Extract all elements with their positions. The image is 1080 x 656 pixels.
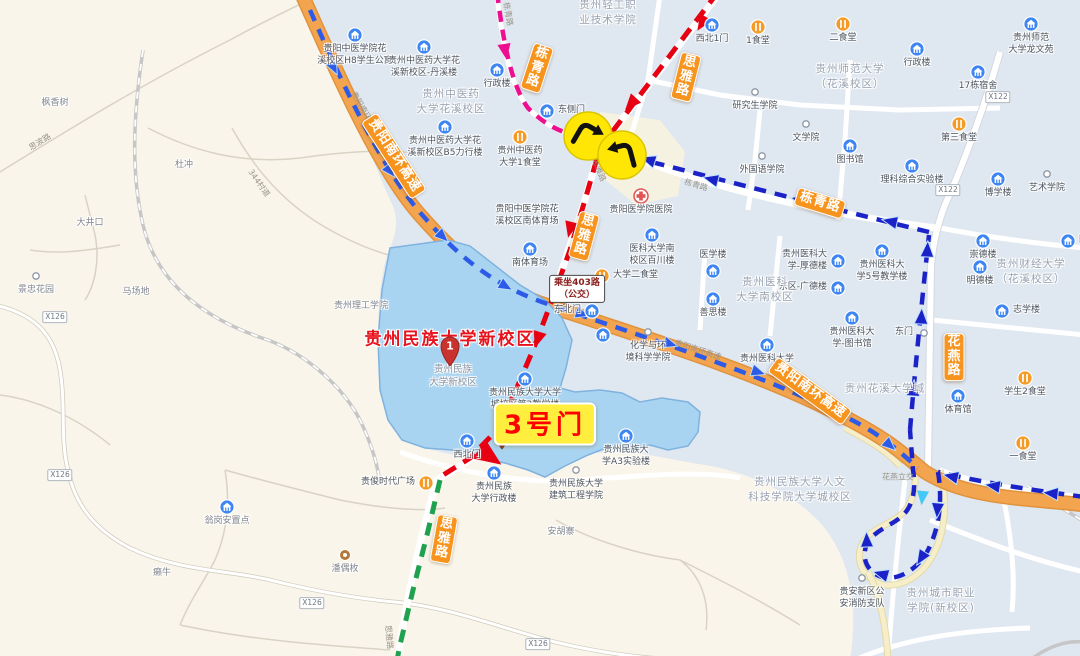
poi-wenxueyuan-icon bbox=[797, 115, 815, 133]
poi-yike-university-icon bbox=[758, 336, 776, 354]
poi-shida-admin-icon bbox=[908, 40, 926, 58]
road-siyalu-small-s: 思雅路 bbox=[382, 625, 395, 650]
poi-foreign-languages-icon bbox=[753, 147, 771, 165]
poi-panoumei-icon bbox=[336, 546, 354, 564]
poi-fire-brigade-label: 贵安新区公安消防支队 bbox=[839, 587, 884, 610]
poi-mingdelou-icon bbox=[971, 258, 989, 276]
turn-left-icon bbox=[596, 129, 648, 185]
route-green-siya bbox=[397, 480, 440, 656]
poi-houdelou-icon bbox=[829, 252, 847, 270]
poi-yixuelou-label: 医学楼 bbox=[699, 250, 726, 262]
poi-lainiu-label: 癞牛 bbox=[153, 568, 171, 580]
poi-zy-canteen1-icon bbox=[511, 128, 529, 146]
poi-boxuelou-icon bbox=[989, 170, 1007, 188]
poi-south-stadium-name-label: 贵阳中医学院花溪校区南体育场 bbox=[495, 204, 558, 227]
poi-dajingkou-label: 大井口 bbox=[76, 218, 103, 230]
poi-gymnasium-icon bbox=[949, 387, 967, 405]
poi-canteen2-icon bbox=[834, 15, 852, 33]
poi-yishitang-icon bbox=[1014, 434, 1032, 452]
shield-x126-c: X126 bbox=[299, 597, 324, 609]
poi-foreign-languages-label: 外国语学院 bbox=[739, 165, 784, 177]
poi-guijun-plaza-icon bbox=[417, 474, 435, 492]
poi-architecture-school-label: 贵州民族大学建筑工程学院 bbox=[549, 479, 603, 502]
shield-x126-d: X126 bbox=[525, 638, 550, 650]
map-canvas[interactable]: 贵阳中医学院花溪校区H8学生公寓贵州中医药大学花溪新校区-丹溪楼行政楼贵州中医药… bbox=[0, 0, 1080, 656]
shield-x126-a: X126 bbox=[42, 311, 67, 323]
poi-b5-building-icon bbox=[436, 118, 454, 136]
poi-east-gate-icon bbox=[915, 324, 933, 342]
poi-minzu-admin-label: 贵州民族大学行政楼 bbox=[471, 482, 516, 505]
poi-zy-canteen1-label: 贵州中医药大学1食堂 bbox=[497, 146, 542, 169]
shield-x122-south: X122 bbox=[935, 184, 960, 196]
poi-yixuelou-icon bbox=[704, 262, 722, 280]
poi-jingzhong-garden-label: 景忠花园 bbox=[18, 285, 54, 297]
poi-zhixuelou-icon bbox=[993, 302, 1011, 320]
poi-northwest-gate1-label: 西北1门 bbox=[696, 34, 729, 46]
poi-teaching-building2-icon bbox=[516, 370, 534, 388]
poi-zy-admin-icon bbox=[488, 61, 506, 79]
poi-univ-canteen2-label: 大学二食堂 bbox=[613, 270, 658, 282]
poi-panoumei-label: 潘偶枚 bbox=[331, 564, 358, 576]
poi-guangdelou-icon bbox=[829, 279, 847, 297]
poi-guizhou-tech-label: 贵州理工学院 bbox=[334, 301, 388, 313]
poi-gymnasium-label: 体育馆 bbox=[944, 405, 971, 417]
poi-minzu-admin-icon bbox=[485, 464, 503, 482]
poi-northeast-gate-icon bbox=[583, 302, 601, 320]
poi-jingzhong-garden-icon bbox=[27, 267, 45, 285]
area-huaxi-university-town: 贵州花溪大学城 bbox=[845, 381, 926, 396]
poi-northwest-gate-icon bbox=[458, 432, 476, 450]
poi-baichuanlou-icon bbox=[643, 226, 661, 244]
poi-guiyang-hospital-icon bbox=[632, 187, 650, 205]
poi-east-gate-label: 东门 bbox=[895, 327, 913, 339]
poi-graduate-school-label: 研究生学院 bbox=[732, 101, 777, 113]
poi-art-school-label: 艺术学院 bbox=[1029, 183, 1065, 195]
poi-duchong-label: 杜冲 bbox=[175, 160, 193, 172]
poi-guijun-plaza-label: 贵俊时代广场 bbox=[361, 477, 415, 489]
shield-x126-b: X126 bbox=[47, 469, 72, 481]
poi-yike-building5-label: 贵州医科大学5号教学楼 bbox=[857, 260, 908, 283]
poi-wenggang-settlement-icon bbox=[218, 498, 236, 516]
poi-yike-library-label: 贵州医科大学-图书馆 bbox=[829, 327, 874, 350]
poi-h8-dorm-label: 贵阳中医学院花溪校区H8学生公寓 bbox=[317, 44, 393, 67]
road-huayan-interchange: 花燕立交 bbox=[882, 472, 914, 483]
poi-b5-building-label: 贵州中医药大学花溪新校区B5力行楼 bbox=[408, 136, 483, 159]
poi-a3-lab-icon bbox=[617, 427, 635, 445]
destination-sub-label: 贵州民族 大学新校区 bbox=[429, 364, 477, 390]
poi-art-school-icon bbox=[1038, 165, 1056, 183]
poi-baichuanlou-label: 医科大学南校区百川楼 bbox=[629, 244, 674, 267]
poi-longwenyuan-icon bbox=[1022, 15, 1040, 33]
poi-science-lab-label: 理科综合实验楼 bbox=[880, 175, 943, 187]
poi-yike-library-icon bbox=[843, 309, 861, 327]
poi-graduate-school-icon bbox=[746, 83, 764, 101]
poi-east-side-gate-icon bbox=[538, 102, 556, 120]
poi-zy-admin-label: 行政楼 bbox=[483, 79, 510, 91]
poi-northwest-gate-label: 西北门 bbox=[453, 450, 480, 462]
poi-south-stadium-label: 南体育场 bbox=[512, 258, 548, 270]
poi-chongdelou-icon bbox=[974, 232, 992, 250]
area-shifan-campus: 贵州师范大学（花溪校区） bbox=[816, 62, 885, 92]
area-renwen-keji-campus: 贵州民族大学人文科技学院大学城校区 bbox=[748, 475, 852, 505]
poi-shida-library-label: 图书馆 bbox=[836, 155, 863, 167]
poi-canteen1-icon bbox=[749, 18, 767, 36]
poi-canteen2-label: 二食堂 bbox=[829, 33, 856, 45]
poi-student-canteen2-label: 学生2食堂 bbox=[1004, 387, 1046, 399]
poi-boxuelou-label: 博学楼 bbox=[984, 188, 1011, 200]
poi-shida-admin-label: 行政楼 bbox=[903, 58, 930, 70]
poi-anhuzhai-label: 安胡寨 bbox=[547, 527, 574, 539]
area-qinggong-college: 贵州轻工职业技术学院 bbox=[579, 0, 637, 28]
poi-canteen3-label: 第三食堂 bbox=[941, 133, 977, 145]
poi-shida-library-icon bbox=[841, 137, 859, 155]
poi-science-lab-icon bbox=[903, 157, 921, 175]
poi-guiyang-hospital-label: 贵阳医学院医院 bbox=[609, 205, 672, 217]
area-city-vocational: 贵州城市职业学院(新校区) bbox=[907, 586, 976, 616]
poi-architecture-school-icon bbox=[567, 461, 585, 479]
poi-caijing-library-icon bbox=[1059, 232, 1077, 250]
poi-machangdi-label: 马场地 bbox=[122, 287, 149, 299]
poi-danxi-building-icon bbox=[415, 38, 433, 56]
poi-shansilou-label: 善思楼 bbox=[699, 308, 726, 320]
poi-danxi-building-label: 贵州中医药大学花溪新校区-丹溪楼 bbox=[388, 56, 460, 79]
poi-northeast-gate-label: 东北门 bbox=[554, 305, 581, 317]
poi-chemistry-school-label: 化学与环境科学学院 bbox=[625, 341, 670, 364]
poi-canteen3-icon bbox=[950, 115, 968, 133]
poi-a3-lab-label: 贵州民族大学A3实验楼 bbox=[602, 445, 650, 468]
area-caijing-campus: 贵州财经大学（花溪校区） bbox=[997, 257, 1066, 287]
gate3-callout: 3号门 bbox=[494, 403, 596, 446]
poi-yishitang-label: 一食堂 bbox=[1009, 452, 1036, 464]
poi-chemistry-school-icon bbox=[639, 323, 657, 341]
poi-northwest-gate1-icon bbox=[703, 16, 721, 34]
poi-h8-dorm-icon bbox=[346, 26, 364, 44]
poi-canteen1-label: 1食堂 bbox=[746, 36, 770, 48]
poi-yike-building5-icon bbox=[873, 242, 891, 260]
poi-student-canteen2-icon bbox=[1016, 369, 1034, 387]
poi-northeast-gate-stop-icon bbox=[594, 326, 612, 344]
poi-wenxueyuan-label: 文学院 bbox=[792, 133, 819, 145]
poi-south-stadium-icon bbox=[521, 240, 539, 258]
poi-shansilou-icon bbox=[704, 290, 722, 308]
poi-fengxiangshu-label: 枫香树 bbox=[41, 98, 68, 110]
area-yike-south-campus: 贵州医科大学南校区 bbox=[736, 275, 794, 305]
poi-longwenyuan-label: 贵州师范大学龙文苑 bbox=[1008, 33, 1053, 56]
poi-dorm-17-icon bbox=[969, 63, 987, 81]
poi-zhixuelou-label: 志学楼 bbox=[1013, 305, 1040, 317]
bus-route-callout: 乘坐403路 （公交） bbox=[549, 275, 605, 303]
svg-text:1: 1 bbox=[446, 340, 454, 353]
poi-houdelou-label: 贵州医科大学-厚德楼 bbox=[782, 249, 827, 272]
area-zhongyiyao-campus: 贵州中医药大学花溪校区 bbox=[417, 87, 486, 117]
shield-x122-north: X122 bbox=[985, 91, 1010, 103]
poi-fire-brigade-icon bbox=[853, 569, 871, 587]
poi-wenggang-settlement-label: 翁岗安置点 bbox=[204, 516, 249, 528]
ribbon-huayan: 花燕路 bbox=[943, 333, 964, 381]
poi-mingdelou-label: 明德楼 bbox=[966, 276, 993, 288]
